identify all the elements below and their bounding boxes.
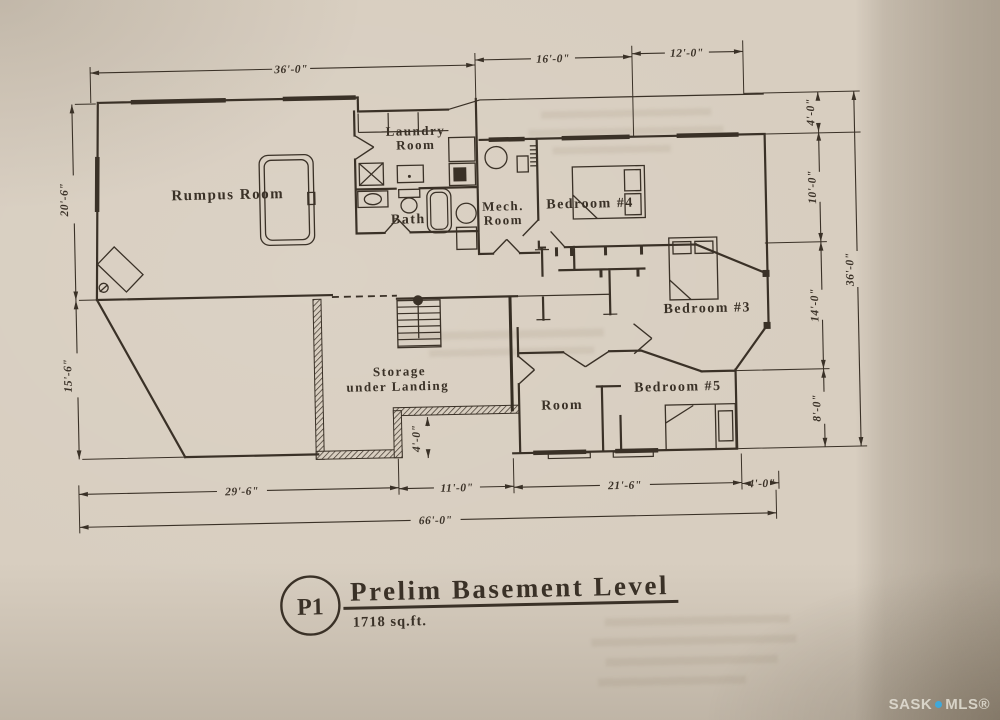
toilet-tank [399, 189, 420, 197]
room-label-bath: Bath [391, 212, 426, 228]
newel-post [413, 295, 423, 305]
dim-interior-4: 4'-0" [411, 424, 424, 453]
corner-fireplace [97, 246, 143, 292]
room-label-mech-2: Room [484, 212, 524, 228]
bed-bedroom3 [669, 237, 718, 300]
mls-dot-icon [935, 701, 942, 708]
washer [449, 137, 475, 162]
dim-bottom-29-6: 29'-6" [224, 486, 259, 499]
water-heater [456, 203, 476, 223]
room-label-rumpus: Rumpus Room [171, 186, 284, 204]
dim-left-20-6: 20'-6" [58, 183, 71, 218]
room-label-bedroom4: Bedroom #4 [546, 196, 634, 213]
dim-right-8: 8'-0" [811, 394, 824, 422]
dashed-opening [332, 296, 397, 297]
room-label-bedroom3: Bedroom #3 [663, 300, 751, 317]
dim-top-12: 12'-0" [670, 47, 704, 60]
dim-right-10: 10'-0" [806, 170, 819, 204]
laundry-sink [397, 165, 423, 183]
dim-bottom-4: 4'-0" [747, 478, 776, 491]
room-label-laundry-2: Room [396, 137, 436, 153]
floor-plan-drawing: 36'-0" 16'-0" 12'-0" 20'-6" 15'-6" 4'-0"… [0, 0, 1000, 720]
room-label-bedroom5: Bedroom #5 [634, 379, 722, 396]
watermark-mls: MLS® [945, 696, 990, 713]
storage-right-wall [510, 296, 512, 411]
dim-top-36: 36'-0" [273, 64, 308, 77]
floor-area: 1718 sq.ft. [353, 613, 428, 631]
bed-bedroom5 [665, 404, 736, 450]
dim-right-14: 14'-0" [809, 288, 822, 322]
sheet-number: P1 [297, 594, 324, 621]
dim-right-36: 36'-0" [844, 252, 857, 287]
dimension-lines [70, 49, 863, 527]
dim-bottom-21-6: 21'-6" [607, 480, 642, 493]
dim-right-4: 4'-0" [805, 98, 818, 127]
dim-top-16: 16'-0" [536, 53, 570, 66]
dim-bottom-66: 66'-0" [419, 515, 453, 528]
dim-left-15-6: 15'-6" [62, 359, 75, 393]
dim-bottom-11: 11'-0" [440, 482, 473, 495]
door-stubs-and-posts [555, 243, 771, 333]
watermark-sask: SASK [889, 696, 933, 713]
room-label-room: Room [541, 398, 583, 414]
room-label-storage-1: Storage [373, 363, 426, 379]
mls-watermark: SASK MLS® [889, 696, 990, 713]
furnace [485, 146, 507, 168]
extension-lines [70, 38, 869, 533]
room-label-storage-2: under Landing [346, 378, 449, 395]
floor-plan-photo: 36'-0" 16'-0" 12'-0" 20'-6" 15'-6" 4'-0"… [0, 0, 1000, 720]
toilet-bowl [401, 198, 417, 213]
